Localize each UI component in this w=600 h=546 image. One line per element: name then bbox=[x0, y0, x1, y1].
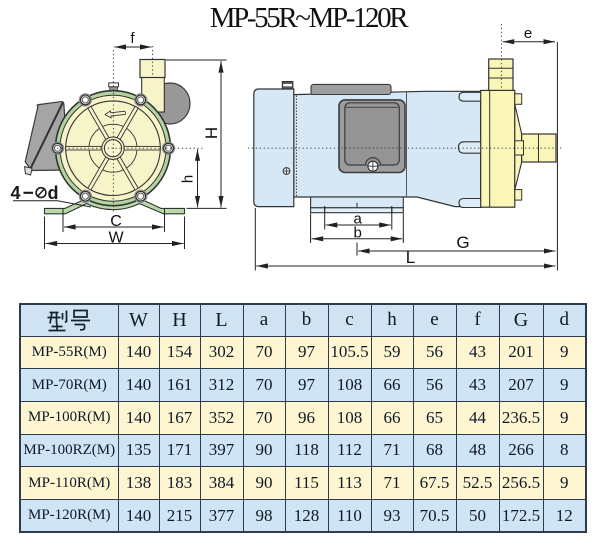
svg-text:4: 4 bbox=[11, 183, 21, 203]
svg-text:b: b bbox=[354, 224, 362, 241]
svg-text:d: d bbox=[48, 183, 59, 203]
svg-text:H: H bbox=[202, 127, 221, 139]
svg-text:W: W bbox=[108, 230, 124, 247]
svg-text:G: G bbox=[456, 233, 469, 252]
svg-text:h: h bbox=[180, 175, 197, 183]
svg-text:e: e bbox=[524, 25, 532, 42]
svg-text:f: f bbox=[130, 30, 135, 47]
svg-text:C: C bbox=[110, 213, 122, 230]
svg-text:L: L bbox=[406, 248, 415, 267]
